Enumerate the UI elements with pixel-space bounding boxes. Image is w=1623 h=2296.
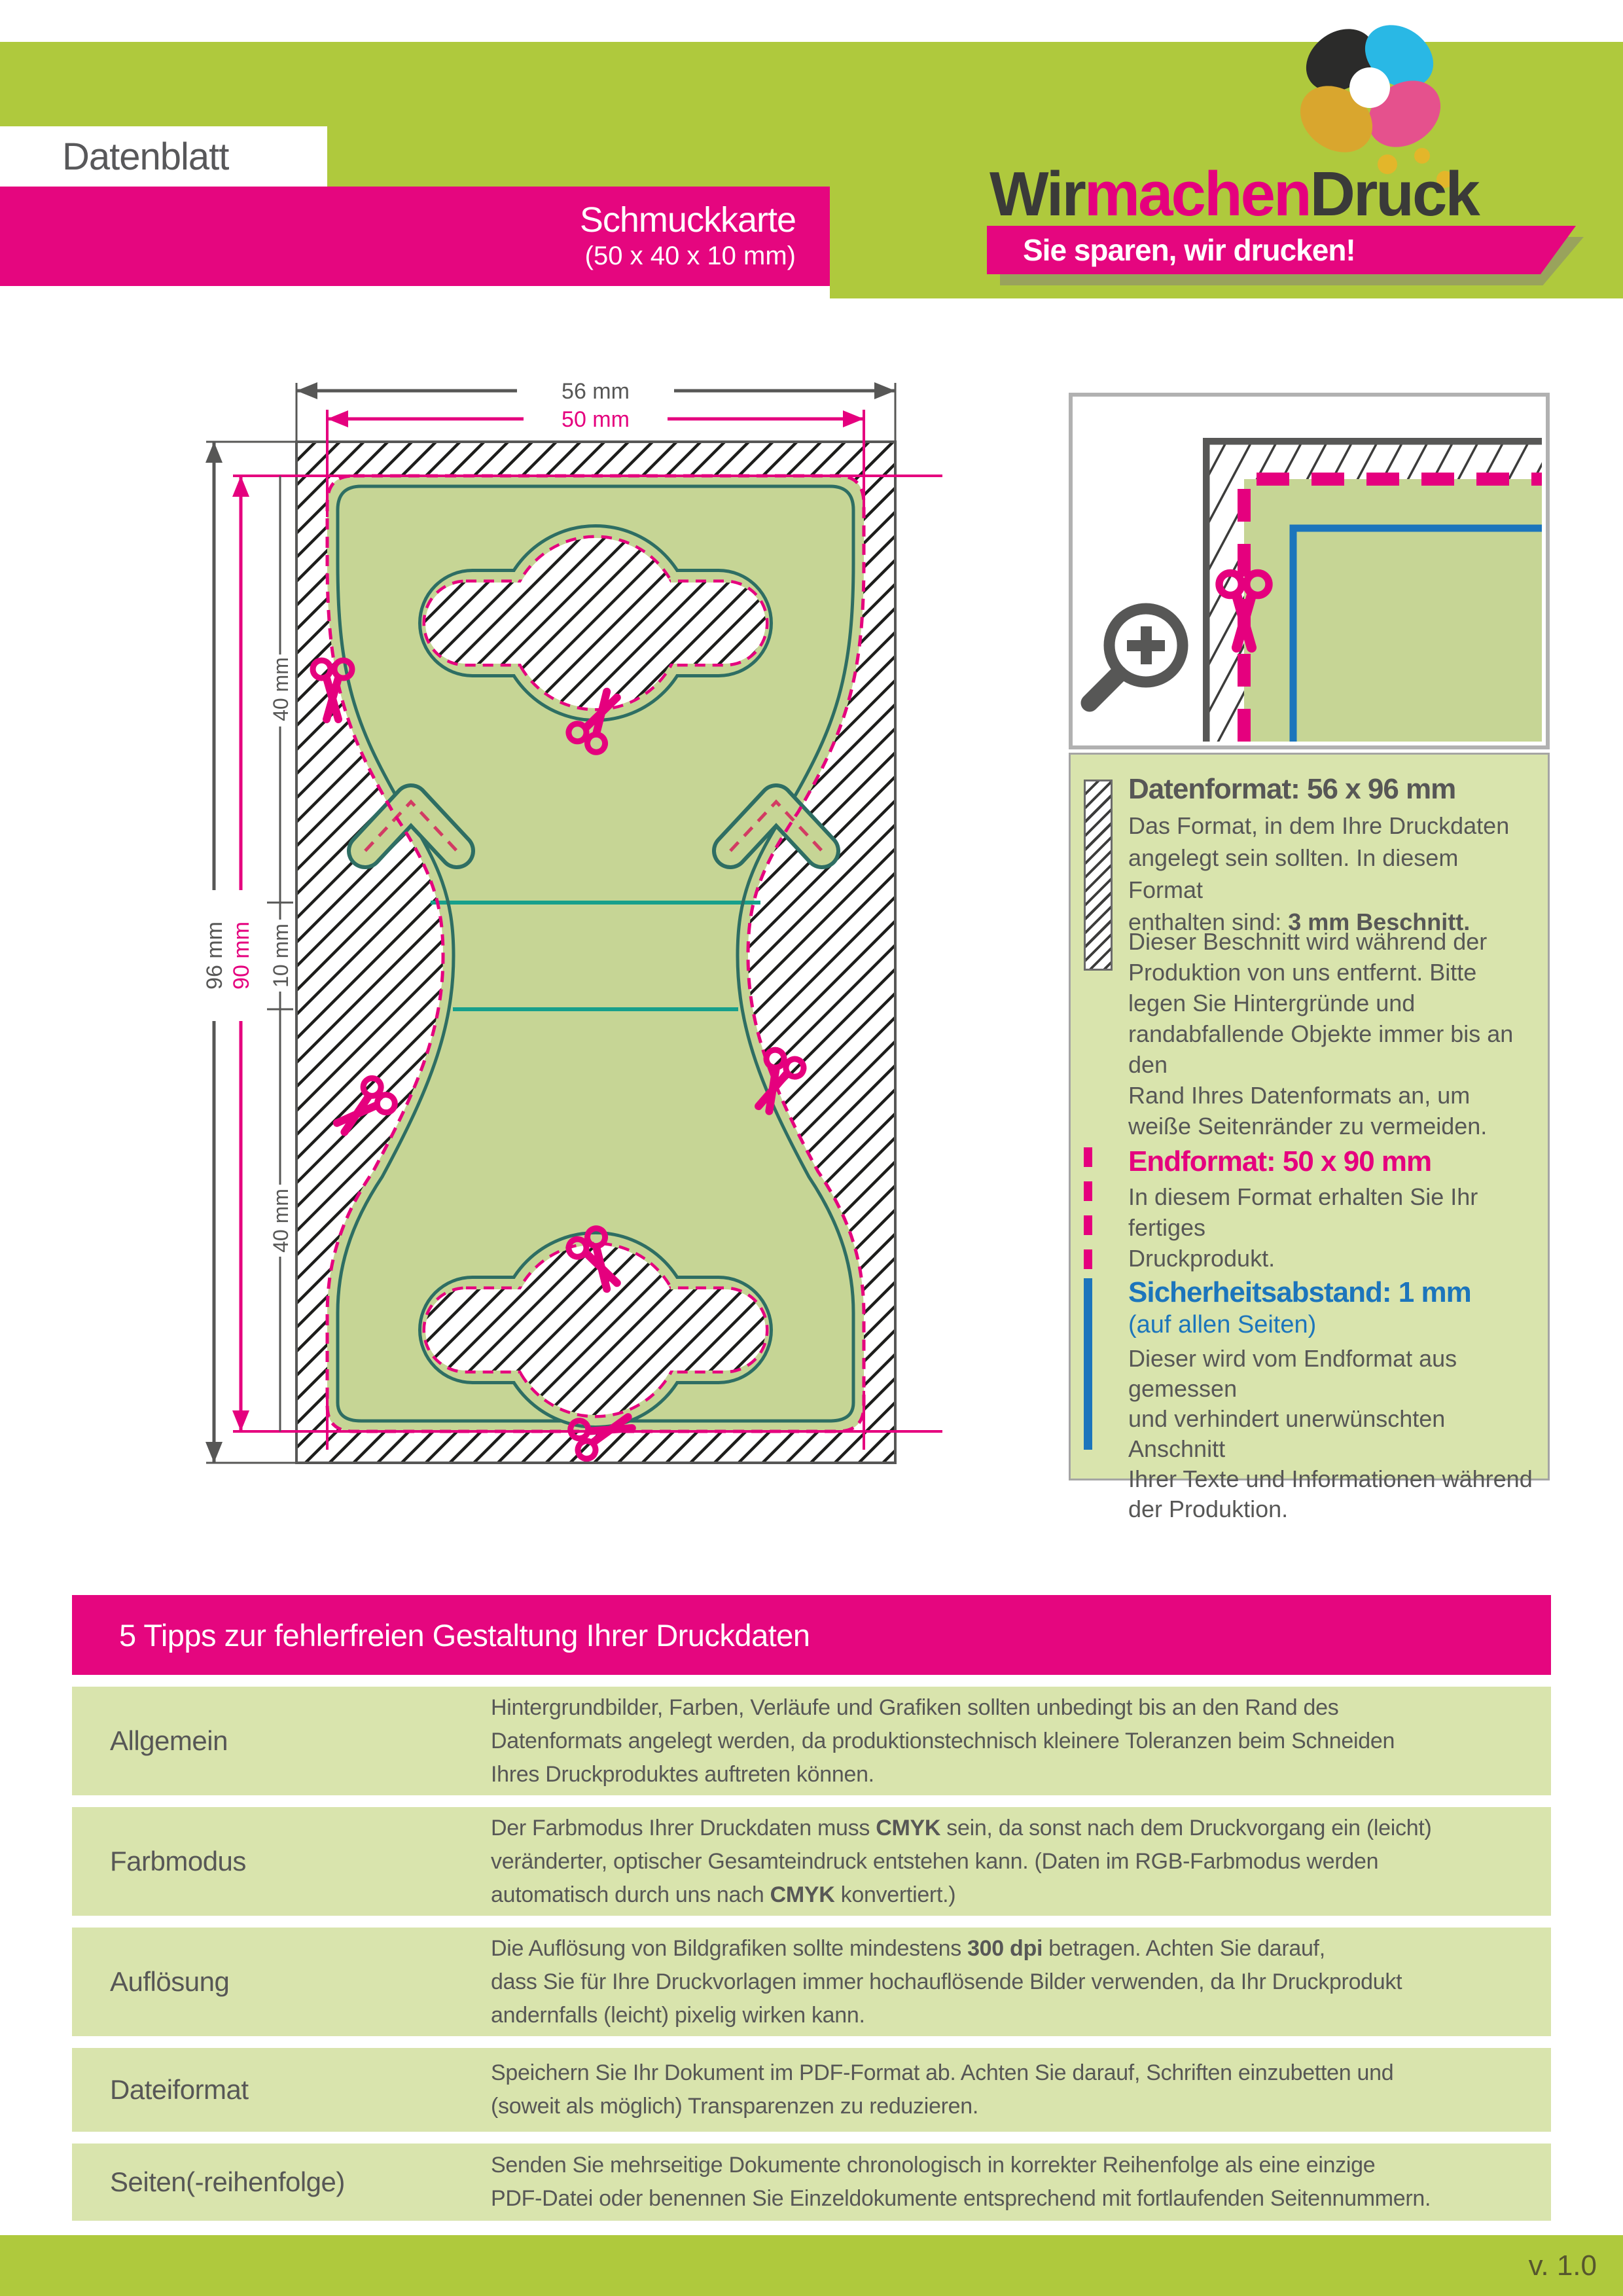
logo-wordmark-druck: Druck <box>1310 159 1478 229</box>
safety-line-swatch <box>1084 1278 1092 1450</box>
tip-text: Hintergrundbilder, Farben, Verläufe und … <box>491 1691 1499 1791</box>
endformat-heading: Endformat: 50 x 90 mm <box>1128 1145 1534 1178</box>
tip-row-dateiformat: Dateiformat Speichern Sie Ihr Dokument i… <box>72 2048 1551 2132</box>
datenformat-heading: Datenformat: 56 x 96 mm <box>1128 773 1534 806</box>
dim-label-40mm-top: 40 mm <box>269 657 293 721</box>
tips-banner: 5 Tipps zur fehlerfreien Gestaltung Ihre… <box>72 1595 1551 1675</box>
magnifier-icon <box>1090 609 1183 703</box>
doc-type-box: Datenblatt <box>0 126 327 187</box>
tip-text: Der Farbmodus Ihrer Druckdaten muss CMYK… <box>491 1812 1499 1912</box>
datenformat-body: Das Format, in dem Ihre Druckdaten angel… <box>1128 810 1534 938</box>
slogan-banner: Sie sparen, wir drucken! <box>987 226 1576 274</box>
tip-row-aufloesung: Auflösung Die Auflösung von Bildgrafiken… <box>72 1928 1551 2036</box>
bleed-hatch-swatch <box>1084 780 1113 971</box>
tip-text: Senden Sie mehrseitige Dokumente chronol… <box>491 2149 1499 2215</box>
tip-label: Farbmodus <box>72 1846 491 1877</box>
zoom-detail-illustration <box>1073 397 1546 745</box>
tip-label: Auflösung <box>72 1966 491 1998</box>
endformat-dash-swatch <box>1084 1147 1092 1288</box>
tip-row-farbmodus: Farbmodus Der Farbmodus Ihrer Druckdaten… <box>72 1807 1551 1916</box>
version-label: v. 1.0 <box>1529 2250 1623 2282</box>
product-size: (50 x 40 x 10 mm) <box>585 240 796 272</box>
dim-label-50mm: 50 mm <box>562 407 630 432</box>
datenformat-body2: Dieser Beschnitt wird während der Produk… <box>1128 926 1534 1141</box>
slogan-text: Sie sparen, wir drucken! <box>987 232 1355 268</box>
dim-label-90mm: 90 mm <box>229 922 254 990</box>
footer-bar: v. 1.0 <box>0 2235 1623 2296</box>
logo-wordmark: WirmachenDruck <box>990 158 1478 230</box>
sicherheitsabstand-body: Dieser wird vom Endformat aus gemessen u… <box>1128 1344 1534 1524</box>
tip-row-seitenreihenfolge: Seiten(-reihenfolge) Senden Sie mehrseit… <box>72 2144 1551 2221</box>
tip-text: Speichern Sie Ihr Dokument im PDF-Format… <box>491 2056 1499 2123</box>
tip-text: Die Auflösung von Bildgrafiken sollte mi… <box>491 1932 1499 2032</box>
dim-label-96mm: 96 mm <box>202 922 227 990</box>
dimension-width-outer: 56 mm <box>296 379 895 404</box>
tip-row-allgemein: Allgemein Hintergrundbilder, Farben, Ver… <box>72 1687 1551 1795</box>
technical-drawing: 56 mm 50 mm 96 mm 90 mm 40 mm 10 mm 40 m… <box>196 367 949 1499</box>
tip-label: Dateiformat <box>72 2074 491 2106</box>
tip-label: Seiten(-reihenfolge) <box>72 2166 491 2198</box>
logo-wordmark-machen: machen <box>1084 159 1310 229</box>
zoom-detail-box <box>1069 393 1550 749</box>
dim-label-56mm: 56 mm <box>562 379 630 404</box>
dimension-height-outer: 96 mm <box>202 442 227 1463</box>
sicherheitsabstand-subheading: (auf allen Seiten) <box>1128 1311 1534 1339</box>
logo-wordmark-wir: Wir <box>990 159 1084 229</box>
doc-type-label: Datenblatt <box>0 135 228 179</box>
tips-banner-title: 5 Tipps zur fehlerfreien Gestaltung Ihre… <box>72 1617 810 1653</box>
endformat-body: In diesem Format erhalten Sie Ihr fertig… <box>1128 1181 1534 1274</box>
dimension-height-inner: 90 mm <box>229 476 254 1431</box>
dim-label-40mm-bottom: 40 mm <box>269 1189 293 1253</box>
tip-label: Allgemein <box>72 1725 491 1757</box>
dimension-width-inner: 50 mm <box>327 407 864 432</box>
dim-label-10mm: 10 mm <box>269 924 293 988</box>
product-title-box: Schmuckkarte (50 x 40 x 10 mm) <box>0 187 830 286</box>
sicherheitsabstand-heading: Sicherheitsabstand: 1 mm <box>1128 1276 1534 1309</box>
format-info-panel: Datenformat: 56 x 96 mm Das Format, in d… <box>1069 753 1550 1480</box>
product-title: Schmuckkarte <box>580 200 796 240</box>
